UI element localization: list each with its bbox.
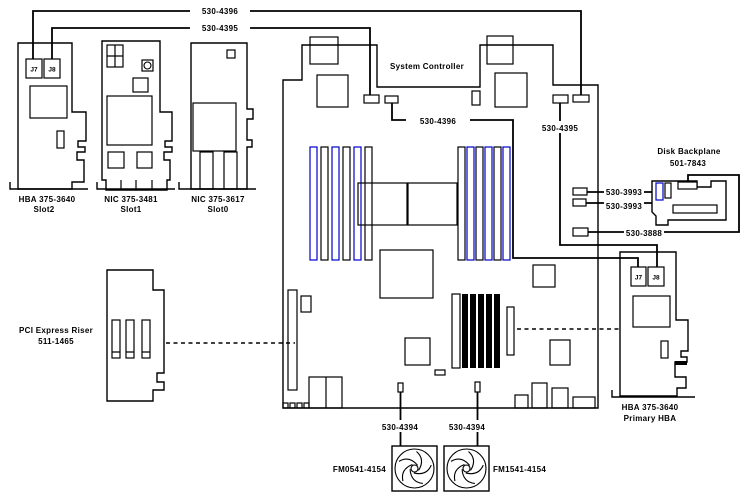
nic-slot0-connector-a <box>200 152 213 189</box>
fan-module-0: FM0541-4154 <box>333 446 437 491</box>
top-edge-connector-b <box>487 36 513 64</box>
chip-c2 <box>550 340 570 365</box>
top-edge-connector-a <box>310 37 338 64</box>
chip-a2 <box>495 73 527 107</box>
nic-slot1-subtitle: Slot1 <box>120 205 141 214</box>
nic-slot1-small-chip <box>133 78 148 92</box>
primary-hba-title: HBA 375-3640 <box>622 403 679 412</box>
cable-label-530-4394-b: 530-4394 <box>449 423 485 432</box>
chip-b1 <box>405 338 430 365</box>
header-connector-c <box>553 95 568 103</box>
heatsink-fin <box>462 294 468 368</box>
slot2-baseline <box>10 182 88 189</box>
primary-hba-component <box>661 341 668 358</box>
fan1-rotor-icon <box>447 449 486 488</box>
hba-slot2-chip <box>30 86 67 118</box>
hba-slot2-j8-label: J8 <box>48 67 56 74</box>
primary-hba-subtitle: Primary HBA <box>624 414 677 423</box>
disk-backplane: Disk Backplane 501-7843 <box>652 147 726 225</box>
card-pci-riser: PCI Express Riser 511-1465 <box>19 270 164 401</box>
primary-hba-j8-label: J8 <box>652 275 660 282</box>
cable-label-530-4395-top: 530-4395 <box>202 24 238 33</box>
bottom-pin <box>283 403 288 408</box>
fan1-header <box>475 382 480 392</box>
fan0-header <box>398 383 403 392</box>
nic-slot1-chip-a <box>108 152 124 168</box>
pci-riser-outline <box>107 270 164 401</box>
cable-label-530-3993-a: 530-3993 <box>606 188 642 197</box>
sas-connector-a <box>573 188 587 195</box>
memory-slot <box>321 147 328 260</box>
power-connector <box>573 228 588 236</box>
io-port <box>515 395 528 408</box>
fan0-rotor-icon <box>395 449 434 488</box>
cable-label-530-3993-b: 530-3993 <box>606 202 642 211</box>
primary-hba-bracket-tab <box>675 361 687 365</box>
system-controller-label: System Controller <box>390 62 464 71</box>
memory-slot <box>458 147 465 260</box>
sas-connector-b <box>573 199 586 206</box>
chip-c1 <box>533 265 555 287</box>
io-port <box>573 397 595 408</box>
motherboard: System Controller <box>283 36 598 408</box>
fan1-body <box>444 446 489 491</box>
fan-module-1: FM1541-4154 <box>444 446 546 491</box>
io-port <box>532 383 547 408</box>
heatsink-frame <box>452 294 460 368</box>
backplane-blue-connector <box>656 183 663 200</box>
memory-slot <box>476 147 483 260</box>
nic-slot0-title: NIC 375-3617 <box>191 195 245 204</box>
chipset <box>380 250 433 298</box>
cpu-b <box>408 183 457 225</box>
cable-label-530-3888: 530-3888 <box>626 229 662 238</box>
nic-slot0-led <box>227 50 235 58</box>
nic-slot0-subtitle: Slot0 <box>207 205 228 214</box>
small-flat-component <box>435 370 445 375</box>
nic-slot1-main-chip <box>107 96 152 145</box>
backplane-power-connector <box>678 182 697 189</box>
hba-slot2-component <box>57 131 64 148</box>
memory-slot <box>467 147 474 260</box>
riser-slot <box>288 290 297 390</box>
bottom-pin <box>290 403 295 408</box>
cable-530-4396-mid <box>392 102 638 268</box>
nic-slot0-connector-b <box>224 152 237 189</box>
nic-slot1-led-circle-icon <box>144 62 151 69</box>
pci-riser-title: PCI Express Riser <box>19 326 93 335</box>
heatsink-fin <box>494 294 500 368</box>
motherboard-outline <box>283 45 598 408</box>
fan1-label: FM1541-4154 <box>493 465 546 474</box>
header-connector-b <box>385 96 398 103</box>
memory-bank-left <box>310 147 372 260</box>
fan0-body <box>392 446 437 491</box>
cable-label-530-4396-top: 530-4396 <box>202 7 238 16</box>
small-vertical-connector <box>472 91 480 105</box>
backplane-slot <box>673 205 717 213</box>
memory-slot <box>332 147 339 260</box>
bottom-pin <box>304 403 309 408</box>
card-nic-slot1: NIC 375-3481 Slot1 <box>102 41 172 214</box>
card-nic-slot0: NIC 375-3617 Slot0 <box>191 43 253 214</box>
disk-backplane-title: Disk Backplane <box>657 147 721 156</box>
nic-slot1-window-cross <box>107 45 123 67</box>
memory-slot <box>494 147 501 260</box>
primary-hba-chip <box>633 296 670 327</box>
bottom-edge-components <box>283 377 595 408</box>
bottom-pin <box>297 403 302 408</box>
heatsink-fin <box>470 294 476 368</box>
disk-backplane-subtitle: 501-7843 <box>670 159 706 168</box>
cable-530-4395-top <box>52 28 370 96</box>
cabling-diagram: J7 J8 HBA 375-3640 Slot2 NIC 375-3481 Sl… <box>0 0 744 499</box>
cable-label-530-4395-mid: 530-4395 <box>542 124 578 133</box>
heatsink-side-rail <box>507 307 514 355</box>
heatsink <box>452 294 514 368</box>
header-connector-d <box>573 95 589 102</box>
memory-slot <box>485 147 492 260</box>
memory-slot <box>343 147 350 260</box>
memory-slot <box>503 147 510 260</box>
slot-lines <box>10 182 695 397</box>
memory-bank-right <box>458 147 510 260</box>
heatsink-fin <box>478 294 484 368</box>
small-chip-near-riser <box>301 296 311 312</box>
hba-slot2-j7-label: J7 <box>30 67 38 74</box>
memory-slot <box>365 147 372 260</box>
cable-label-530-4394-a: 530-4394 <box>382 423 418 432</box>
nic-slot1-title: NIC 375-3481 <box>104 195 158 204</box>
io-port <box>552 388 568 408</box>
pci-riser-subtitle: 511-1465 <box>38 337 74 346</box>
header-connector-a <box>364 95 379 103</box>
hba-slot2-subtitle: Slot2 <box>33 205 54 214</box>
heatsink-fin <box>486 294 492 368</box>
memory-slot <box>310 147 317 260</box>
hba-slot2-title: HBA 375-3640 <box>19 195 76 204</box>
backplane-black-connector <box>665 183 671 198</box>
nic-slot0-main-chip <box>193 103 236 151</box>
nic-slot1-chip-b <box>137 152 152 168</box>
cable-label-530-4396-mid: 530-4396 <box>420 117 456 126</box>
primary-hba-j7-label: J7 <box>635 275 643 282</box>
chip-a1 <box>317 75 348 107</box>
fan0-label: FM0541-4154 <box>333 465 386 474</box>
